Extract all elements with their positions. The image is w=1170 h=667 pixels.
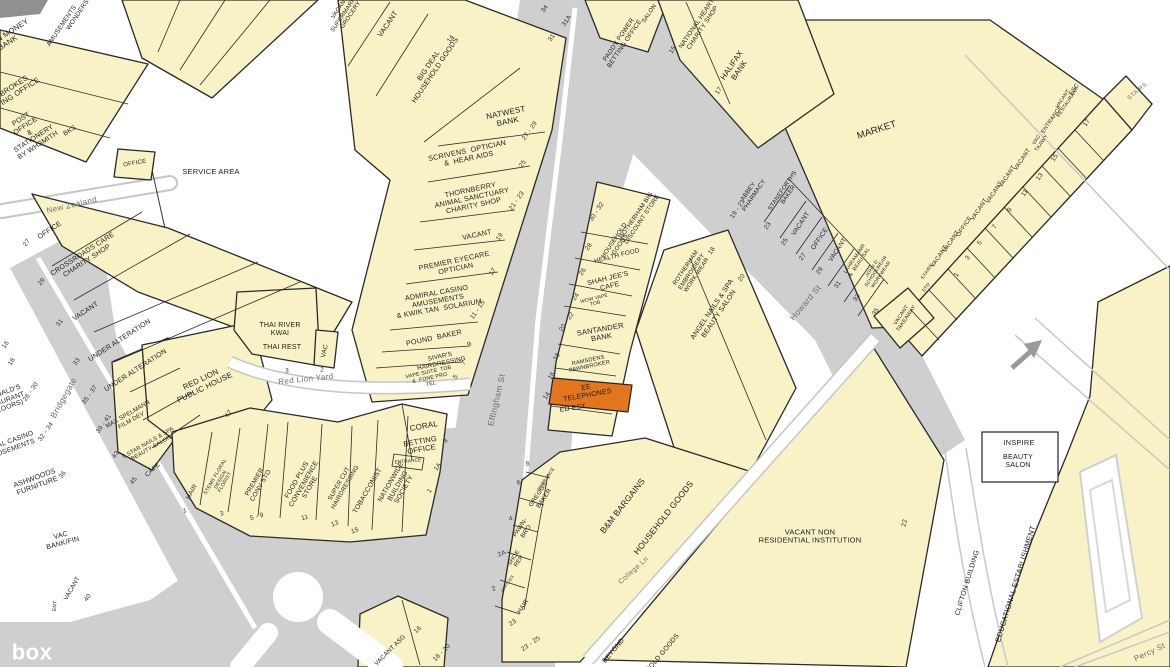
dark-corner [0, 0, 48, 18]
building-office-box [114, 149, 155, 180]
street-new-zealand-fill [2, 183, 170, 211]
building-bank-post-office [0, 30, 148, 162]
path-clifton-1 [943, 438, 985, 667]
map-canvas [0, 0, 1170, 667]
building-top-strip [122, 0, 318, 98]
building-vac-sliver [314, 330, 338, 368]
goad-retail-plan-map: VIRGIN MONEY BANKLADBROKES BETTING OFFIC… [0, 0, 1170, 667]
roundabout [273, 572, 323, 622]
building-inspire [982, 432, 1058, 482]
